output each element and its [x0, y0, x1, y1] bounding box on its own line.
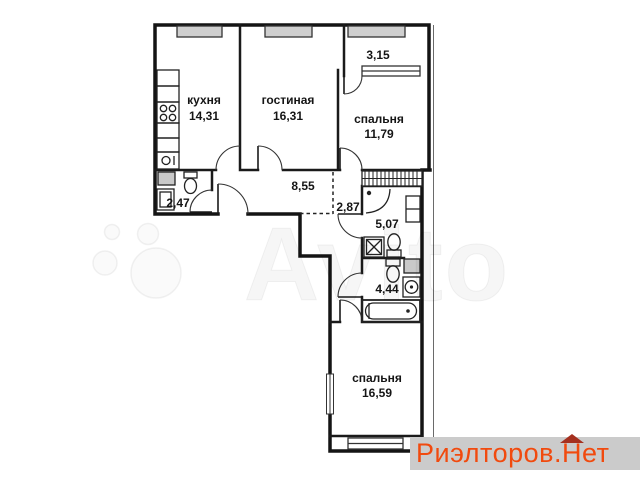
realtor-brand-strip: Риэлторов.Нет [410, 437, 640, 470]
brand-letter-with-roof: Н [562, 438, 582, 469]
floor-plan: кухня 14,31 гостиная 16,31 спальня 11,79… [0, 0, 640, 480]
window-living [265, 26, 312, 37]
room-label-living-name: гостиная [262, 93, 315, 107]
floorplan-screenshot: кухня 14,31 гостиная 16,31 спальня 11,79… [0, 0, 640, 480]
zone-label-hallway: 8,55 [291, 179, 315, 193]
house-roof-icon [560, 434, 584, 443]
room-label-bedroom-top-area: 11,79 [364, 127, 394, 141]
zone-label-wc-small: 2,47 [166, 196, 190, 210]
room-label-bedroom-top-name: спальня [354, 112, 404, 126]
room-label-bedroom-bottom-area: 16,59 [362, 386, 392, 400]
avito-watermark: Avito [93, 207, 510, 323]
room-label-bedroom-bottom-name: спальня [352, 371, 402, 385]
brand-text-suffix: ет [582, 438, 610, 469]
room-label-kitchen-area: 14,31 [189, 109, 219, 123]
wardrobe [362, 171, 422, 186]
window-balcony-top [348, 26, 405, 37]
kitchen-fixtures [157, 70, 179, 169]
room-label-kitchen-name: кухня [187, 93, 221, 107]
zone-label-balcony: 3,15 [366, 48, 390, 62]
avito-watermark-text: Avito [244, 207, 510, 323]
avito-logo-circles [93, 224, 181, 299]
brand-text-prefix: Риэлторов. [416, 438, 562, 469]
window-kitchen [177, 26, 222, 37]
room-label-living-area: 16,31 [273, 109, 303, 123]
